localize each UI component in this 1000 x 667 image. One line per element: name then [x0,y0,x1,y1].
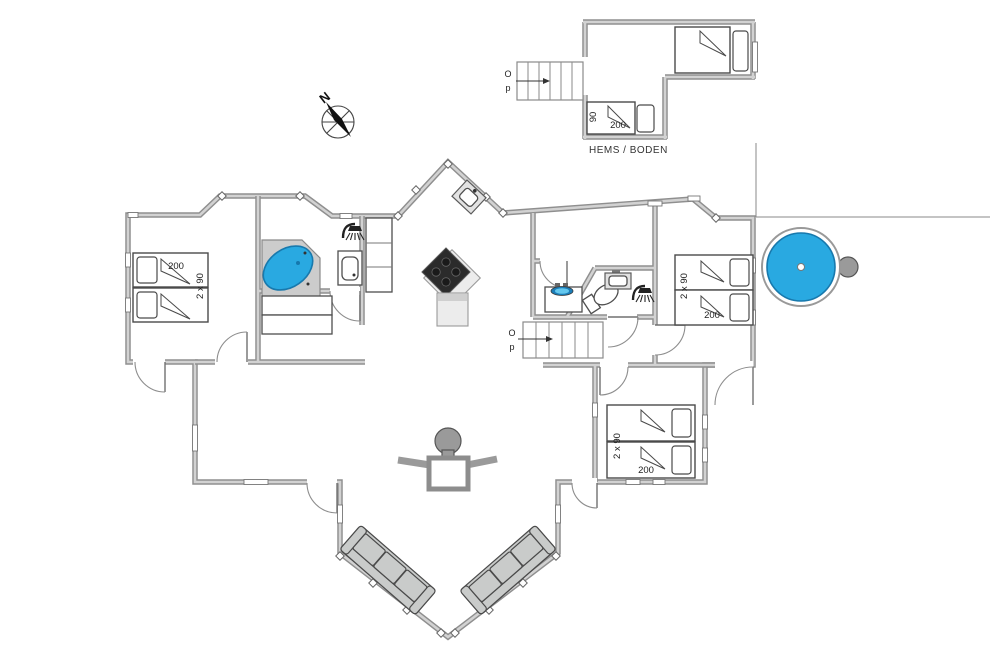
fireplace [398,428,497,489]
hems-bed-small: 90 200 [587,102,654,134]
bedroom-right-upper-length-label: 200 [704,310,720,321]
compass-north-label: N [316,89,333,107]
bedroom-left-length-label: 200 [168,261,184,272]
hems-bed-width-label: 90 [588,112,599,123]
floorplan-drawing: O p 90 200 HEMS / BODEN N 20 [0,0,1000,667]
bathroom-middle [545,270,654,315]
bedroom-right-lower-width-label: 2 x 90 [612,433,623,459]
kitchen-cabinets [366,218,392,292]
spa-jet [296,261,300,265]
bedroom-left: 200 2 x 90 [133,253,208,322]
bedroom-right-lower-length-label: 200 [638,465,654,476]
kitchen-island [422,248,480,326]
shower-icon [633,286,654,302]
bedroom-right-upper: 2 x 90 200 [675,255,753,325]
compass-rose: N [316,89,354,138]
bedroom-right-upper-width-label: 2 x 90 [679,273,690,299]
hems-stairs-down-label: p [505,83,510,93]
exterior-walls [128,162,753,637]
hems-stairs: O p [504,62,583,100]
main-stairs-down-label: p [509,342,514,352]
wall-sink [605,270,631,289]
sofa-left [340,525,436,615]
hems-stairs-up-label: O [504,69,511,79]
sofa-right [460,525,556,615]
site-boundary-lines [756,143,990,217]
compass-needle [326,102,351,137]
toilet-left-bath [338,251,362,285]
washbasin-counter [545,283,582,312]
hot-tub [762,228,858,306]
closet-shelves [262,296,332,334]
hems-bed-large [675,27,748,73]
kitchen-sink [452,180,486,214]
window-markers [218,160,720,637]
outbuilding-caption: HEMS / BODEN [589,145,668,156]
main-stairs-up-label: O [508,328,515,338]
bedroom-right-lower: 2 x 90 200 [607,405,695,478]
hems-bed-length-label: 200 [610,120,626,131]
floorplan-page: O p 90 200 HEMS / BODEN N 20 [0,0,1000,667]
main-stairs: O p [508,322,603,358]
bedroom-left-width-label: 2 x 90 [195,273,206,299]
